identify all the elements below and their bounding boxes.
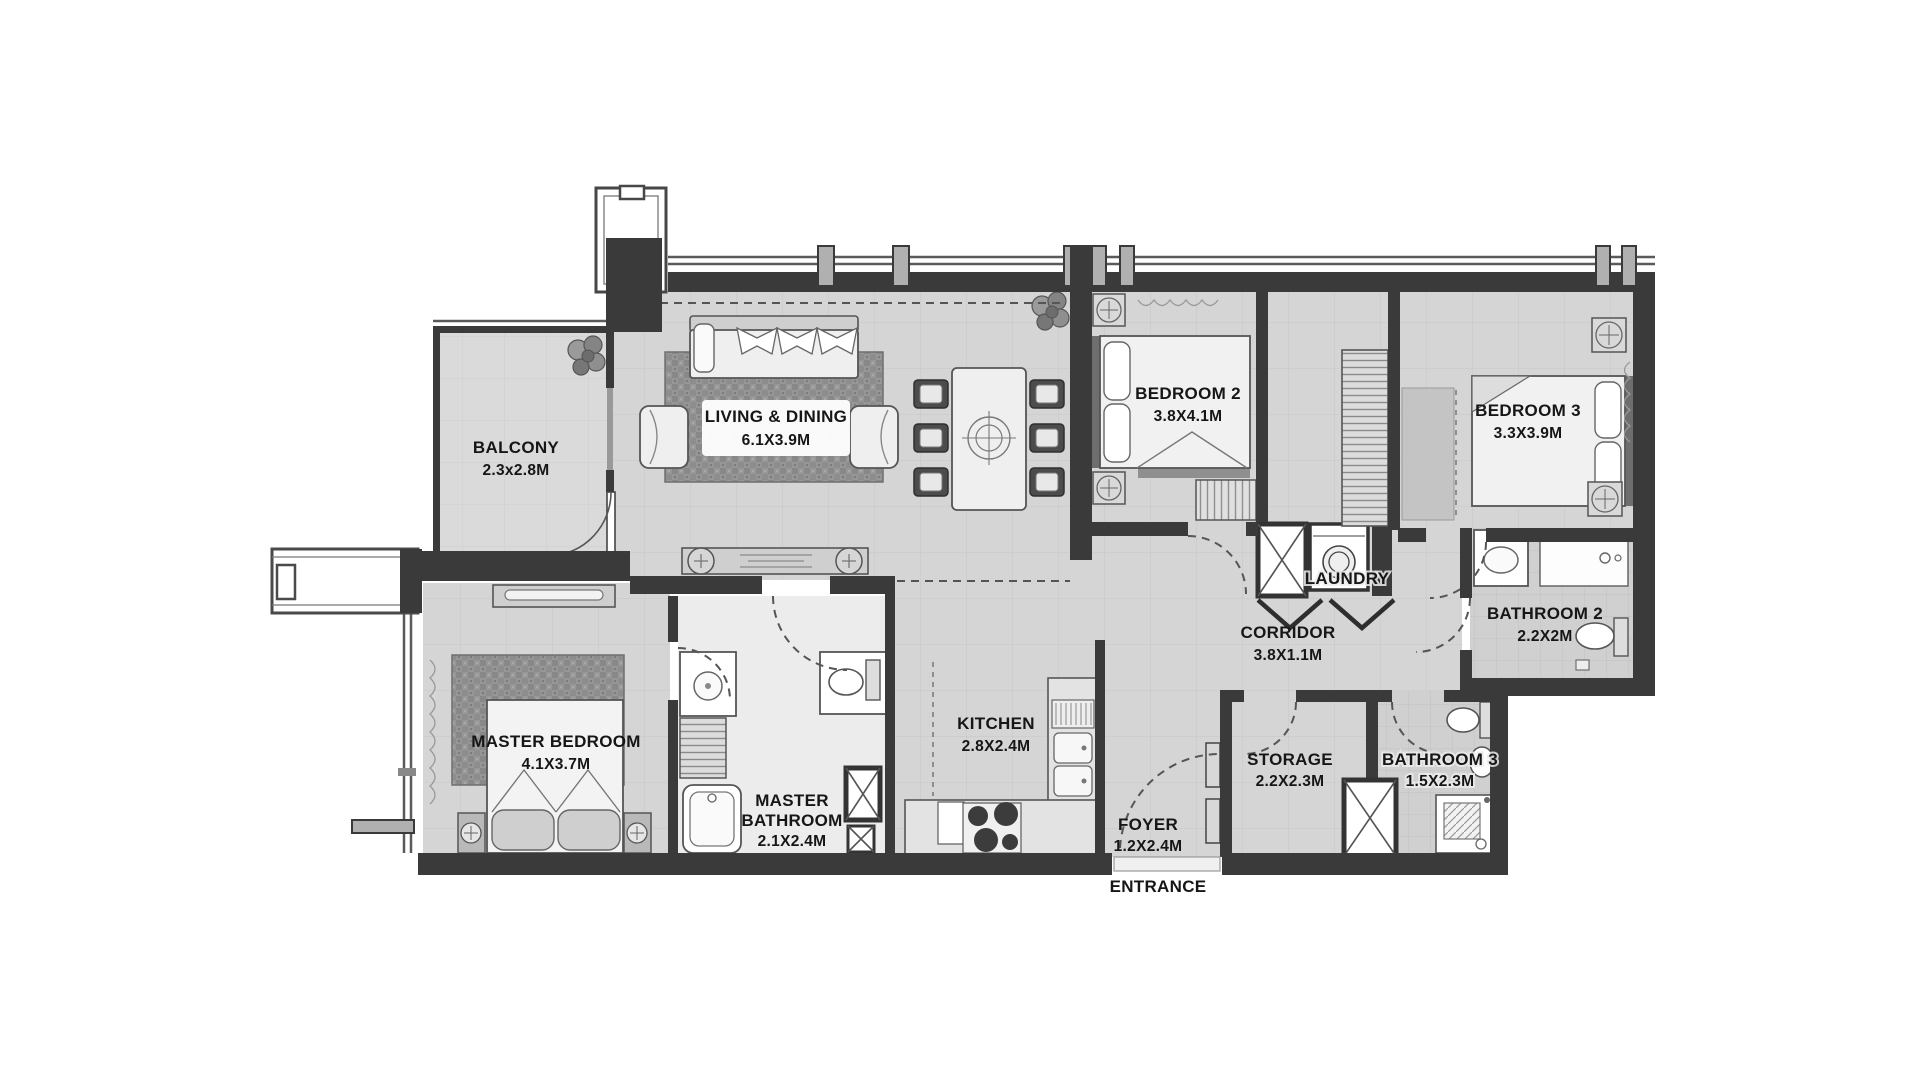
svg-text:4.1X3.7M: 4.1X3.7M <box>522 756 591 773</box>
stove-icon <box>963 802 1021 853</box>
entrance-label: ENTRANCE <box>1110 877 1207 896</box>
wall-fin <box>352 820 414 833</box>
plant-icon <box>1032 292 1069 330</box>
svg-text:2.3x2.8M: 2.3x2.8M <box>482 462 549 479</box>
svg-text:MASTER BEDROOM: MASTER BEDROOM <box>471 732 640 751</box>
svg-text:3.3X3.9M: 3.3X3.9M <box>1494 425 1563 442</box>
shower-icon <box>1436 795 1492 853</box>
svg-text:BATHROOM 3: BATHROOM 3 <box>1382 750 1498 769</box>
svg-text:6.1X3.9M: 6.1X3.9M <box>742 432 811 449</box>
armchair-right <box>850 406 898 468</box>
pillow <box>1104 404 1130 462</box>
right-wall <box>1633 290 1655 696</box>
svg-text:3.8X4.1M: 3.8X4.1M <box>1154 408 1223 425</box>
svg-text:LAUNDRY: LAUNDRY <box>1305 569 1390 588</box>
top-wall <box>668 272 1655 292</box>
plant-icon <box>568 336 605 375</box>
svg-text:BALCONY: BALCONY <box>473 438 560 457</box>
sofa <box>690 316 858 378</box>
svg-text:KITCHEN: KITCHEN <box>957 714 1035 733</box>
bottom-wall <box>418 853 1112 875</box>
svg-text:STORAGE: STORAGE <box>1247 750 1333 769</box>
pillow <box>1104 342 1130 400</box>
tv-console <box>682 548 868 574</box>
ledge-structure <box>272 549 422 613</box>
bedroom3-rug <box>1402 388 1454 520</box>
svg-text:CORRIDOR: CORRIDOR <box>1241 623 1336 642</box>
svg-text:BEDROOM 3: BEDROOM 3 <box>1475 401 1581 420</box>
bottom-wall <box>1222 853 1508 875</box>
wardrobe <box>680 718 726 778</box>
svg-text:BATHROOM: BATHROOM <box>741 811 842 830</box>
svg-text:2.8X2.4M: 2.8X2.4M <box>962 738 1031 755</box>
pillow <box>558 810 620 850</box>
svg-text:3.8X1.1M: 3.8X1.1M <box>1254 647 1323 664</box>
wardrobe <box>1342 350 1388 526</box>
svg-text:2.2X2M: 2.2X2M <box>1517 628 1572 645</box>
svg-text:2.1X2.4M: 2.1X2.4M <box>758 833 827 850</box>
entrance-threshold <box>1114 857 1220 871</box>
room-label-laundry: LAUNDRY <box>1305 569 1390 588</box>
pillow <box>492 810 554 850</box>
svg-text:1.5X2.3M: 1.5X2.3M <box>1406 773 1475 790</box>
svg-text:ENTRANCE: ENTRANCE <box>1110 877 1207 896</box>
armchair-left <box>640 406 688 468</box>
floor-plan-canvas: BALCONY 2.3x2.8M LIVING & DINING 6.1X3.9… <box>0 0 1920 1080</box>
sink-icon <box>1484 547 1518 573</box>
room-label-living-dining: LIVING & DINING 6.1X3.9M <box>702 400 850 456</box>
svg-text:BATHROOM 2: BATHROOM 2 <box>1487 604 1603 623</box>
pillow <box>1595 382 1621 438</box>
dining-table <box>914 368 1064 510</box>
svg-text:BEDROOM 2: BEDROOM 2 <box>1135 384 1241 403</box>
structural-column <box>596 186 666 332</box>
svg-text:2.2X2.3M: 2.2X2.3M <box>1256 773 1325 790</box>
floor-plan-svg: BALCONY 2.3x2.8M LIVING & DINING 6.1X3.9… <box>0 0 1920 1080</box>
toilet-icon <box>829 669 863 695</box>
svg-text:LIVING & DINING: LIVING & DINING <box>705 407 847 426</box>
svg-text:FOYER: FOYER <box>1118 815 1178 834</box>
wardrobe <box>1196 480 1256 520</box>
svg-text:MASTER: MASTER <box>755 791 829 810</box>
svg-text:1.2X2.4M: 1.2X2.4M <box>1114 838 1183 855</box>
dresser <box>493 585 615 607</box>
